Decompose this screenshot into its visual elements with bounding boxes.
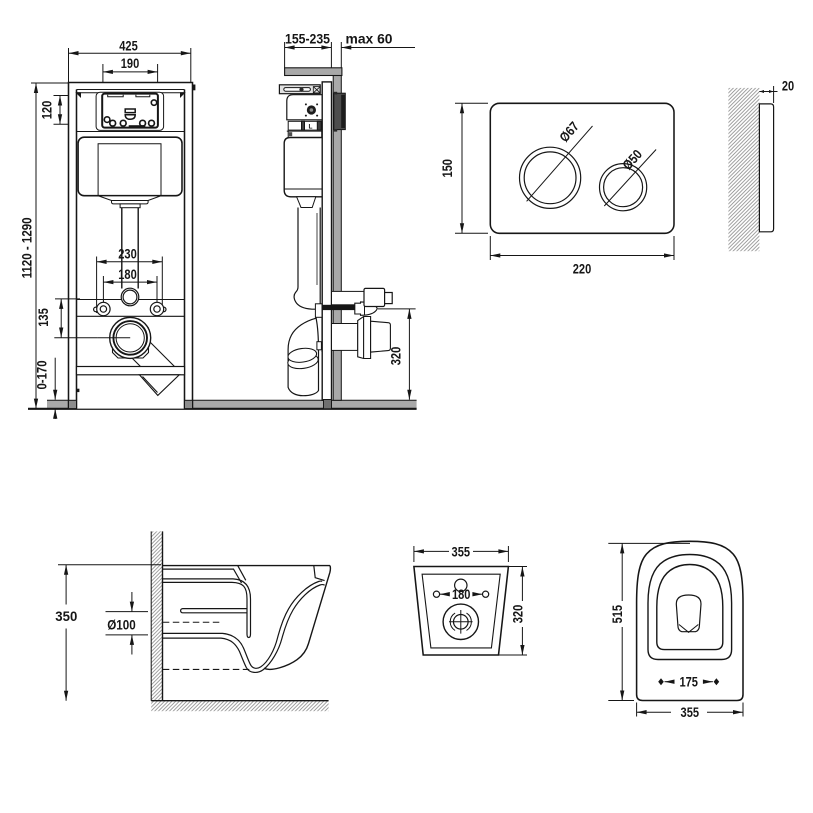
svg-text:230: 230 bbox=[118, 246, 137, 261]
svg-text:150: 150 bbox=[440, 159, 455, 178]
svg-text:515: 515 bbox=[610, 605, 625, 624]
svg-text:220: 220 bbox=[573, 262, 592, 277]
svg-text:180: 180 bbox=[452, 587, 471, 602]
svg-text:20: 20 bbox=[782, 79, 794, 94]
svg-text:155-235: 155-235 bbox=[285, 32, 330, 47]
svg-text:175: 175 bbox=[679, 675, 698, 690]
svg-text:425: 425 bbox=[119, 39, 138, 54]
svg-text:320: 320 bbox=[510, 605, 525, 624]
svg-text:190: 190 bbox=[121, 56, 140, 71]
svg-text:Ø100: Ø100 bbox=[107, 617, 136, 632]
svg-text:350: 350 bbox=[55, 609, 77, 624]
svg-text:135: 135 bbox=[36, 308, 51, 327]
svg-text:320: 320 bbox=[389, 347, 404, 366]
svg-text:L: L bbox=[309, 124, 313, 131]
svg-text:max 60: max 60 bbox=[346, 32, 393, 47]
svg-text:355: 355 bbox=[452, 544, 471, 559]
svg-text:355: 355 bbox=[681, 705, 700, 720]
svg-text:180: 180 bbox=[118, 267, 137, 282]
svg-text:0-170: 0-170 bbox=[35, 361, 50, 390]
svg-text:1120 - 1290: 1120 - 1290 bbox=[20, 217, 35, 278]
svg-text:120: 120 bbox=[39, 101, 54, 120]
